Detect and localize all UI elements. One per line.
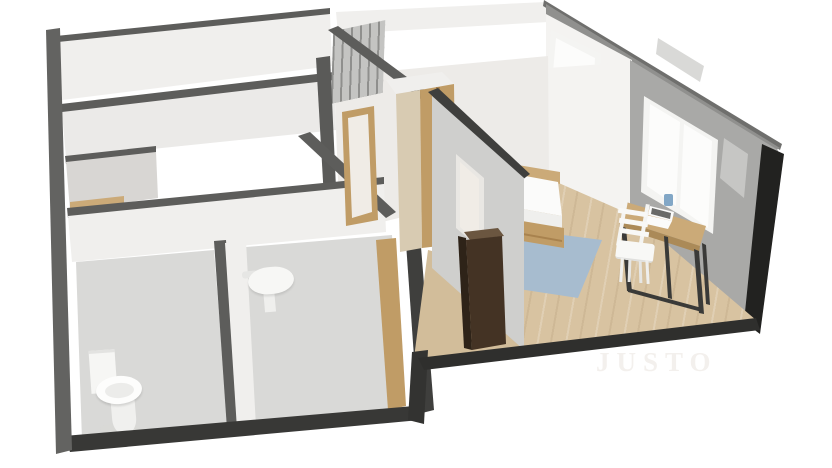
white-chair: [612, 200, 656, 286]
wall-sink: [240, 260, 298, 316]
chair-leg-3: [628, 260, 632, 282]
sink-basin: [247, 265, 296, 297]
blue-cup: [664, 194, 673, 206]
chair-leg-4: [639, 261, 643, 283]
chair-leg-2: [645, 260, 649, 284]
watermark-text: JUSTO: [596, 347, 718, 378]
chair-leg-1: [619, 258, 624, 282]
toilet: [84, 344, 144, 438]
floor-plan-3d-render: JUSTO: [0, 0, 832, 468]
